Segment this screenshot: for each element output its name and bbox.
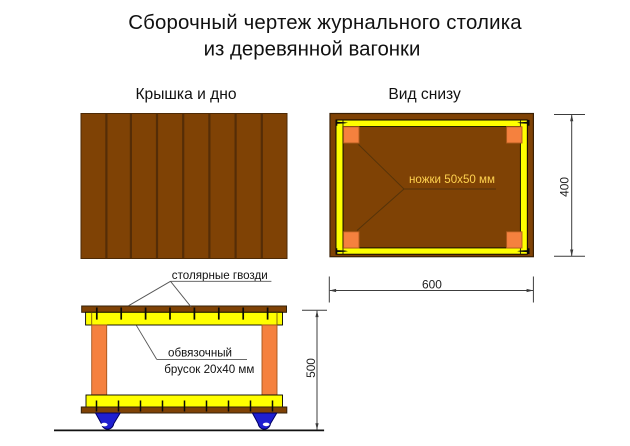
svg-text:столярные гвозди: столярные гвозди	[172, 269, 268, 282]
svg-text:500: 500	[304, 358, 318, 378]
svg-text:Вид снизу: Вид снизу	[388, 86, 461, 103]
svg-text:Крышка и дно: Крышка и дно	[135, 86, 236, 103]
svg-text:ножки 50x50 мм: ножки 50x50 мм	[409, 173, 495, 186]
svg-text:из деревянной вагонки: из деревянной вагонки	[204, 38, 421, 60]
svg-text:400: 400	[558, 177, 572, 197]
svg-text:брусок 20x40 мм: брусок 20x40 мм	[164, 363, 254, 376]
svg-text:600: 600	[422, 278, 442, 292]
svg-text:обвязочный: обвязочный	[168, 347, 232, 360]
svg-text:Сборочный чертеж журнального с: Сборочный чертеж журнального столика	[128, 12, 522, 34]
